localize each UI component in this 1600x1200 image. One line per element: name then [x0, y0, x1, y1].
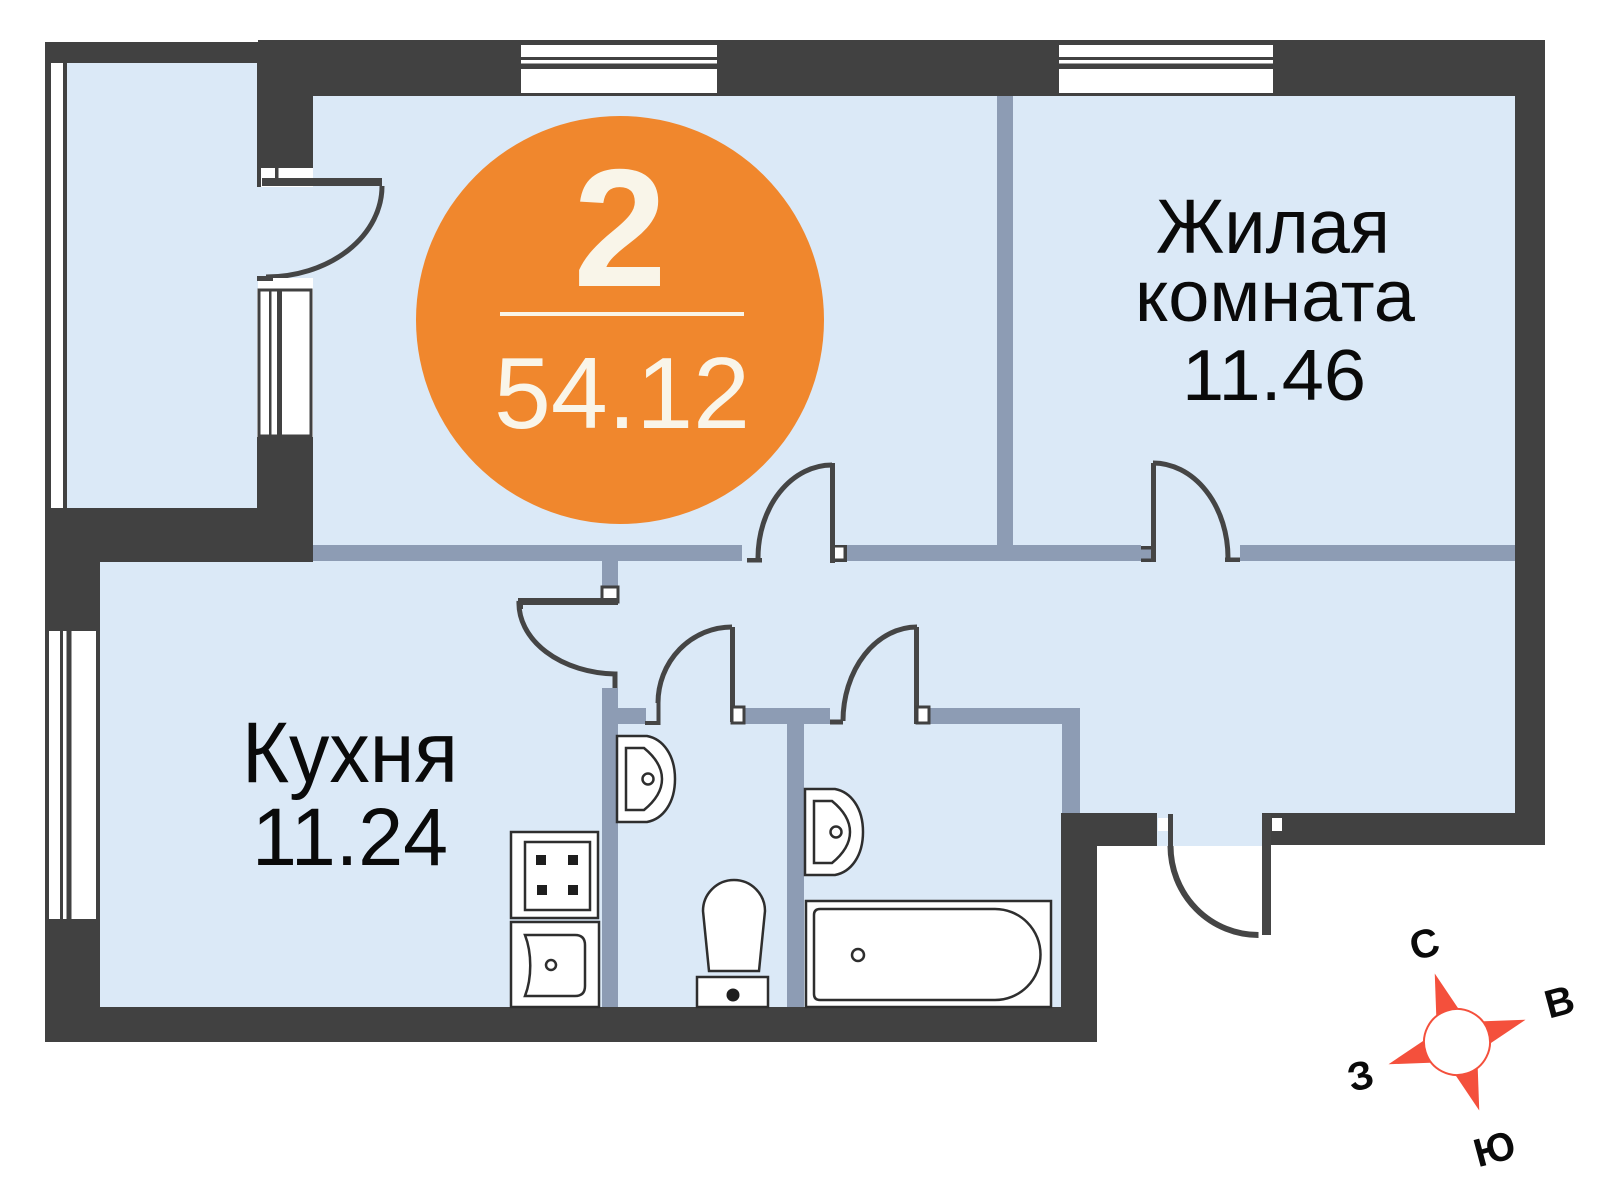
svg-text:Кухня: Кухня — [242, 705, 458, 801]
svg-text:11.24: 11.24 — [252, 792, 448, 883]
svg-text:комната: комната — [1135, 257, 1416, 337]
svg-text:54.12: 54.12 — [494, 338, 750, 450]
svg-text:2: 2 — [573, 134, 666, 322]
svg-text:11.46: 11.46 — [1182, 336, 1366, 416]
